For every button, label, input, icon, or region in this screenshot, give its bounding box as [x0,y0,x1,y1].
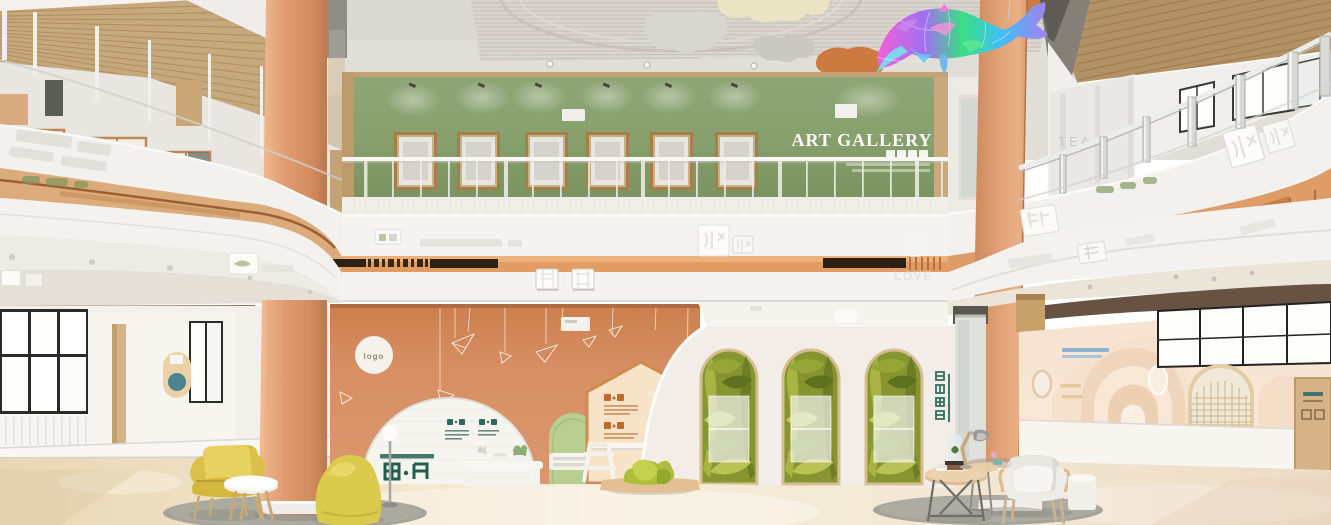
svg-text:ART GALLERY: ART GALLERY [792,130,933,150]
svg-text:LOVE: LOVE [894,269,933,283]
svg-text:logo: logo [364,352,385,361]
